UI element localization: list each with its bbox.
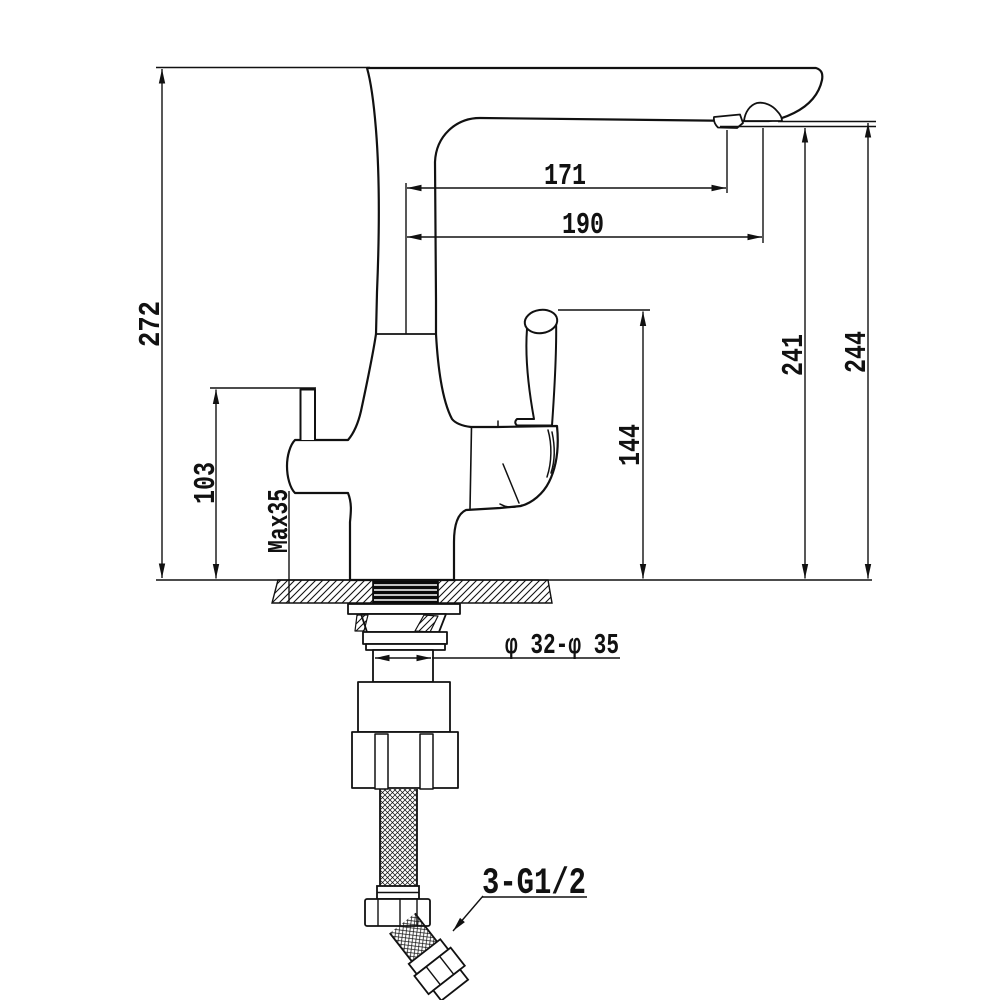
mounting-shank	[373, 650, 433, 682]
left-lever-stem	[301, 390, 316, 441]
shank-collar	[363, 632, 447, 644]
dim-label-thread: 3-G1/2	[482, 863, 586, 905]
dimension-labels: 272 171 190 103 Max35 144 241 244 φ 32-φ…	[134, 159, 875, 905]
dim-label-241: 241	[777, 334, 812, 376]
counter-slab-right	[438, 580, 552, 603]
counter-slab-left	[272, 580, 373, 603]
mounting-nut-upper	[358, 682, 450, 732]
under-deck-assembly	[348, 604, 460, 789]
mounting-nut-lower	[352, 732, 458, 788]
countertop	[272, 580, 552, 603]
backing-washer	[348, 604, 460, 614]
hose-braid	[380, 789, 417, 886]
faucet-technical-drawing: 272 171 190 103 Max35 144 241 244 φ 32-φ…	[0, 0, 1000, 1000]
thread-leader	[453, 896, 483, 931]
supply-hose	[365, 789, 473, 1000]
nut-slot-left	[375, 734, 388, 789]
dim-label-hole-diameter: φ 32-φ 35	[505, 629, 619, 662]
dim-label-103: 103	[189, 462, 224, 504]
dim-label-144: 144	[614, 424, 649, 466]
dim-label-190: 190	[562, 208, 604, 243]
technical-drawing-page: 272 171 190 103 Max35 144 241 244 φ 32-φ…	[0, 0, 1000, 1000]
faucet-body	[287, 68, 822, 580]
dim-label-max35: Max35	[263, 489, 296, 553]
dim-label-272: 272	[134, 301, 169, 347]
dim-label-244: 244	[840, 331, 875, 373]
dim-label-171: 171	[544, 159, 586, 194]
nut-slot-right	[420, 734, 433, 789]
